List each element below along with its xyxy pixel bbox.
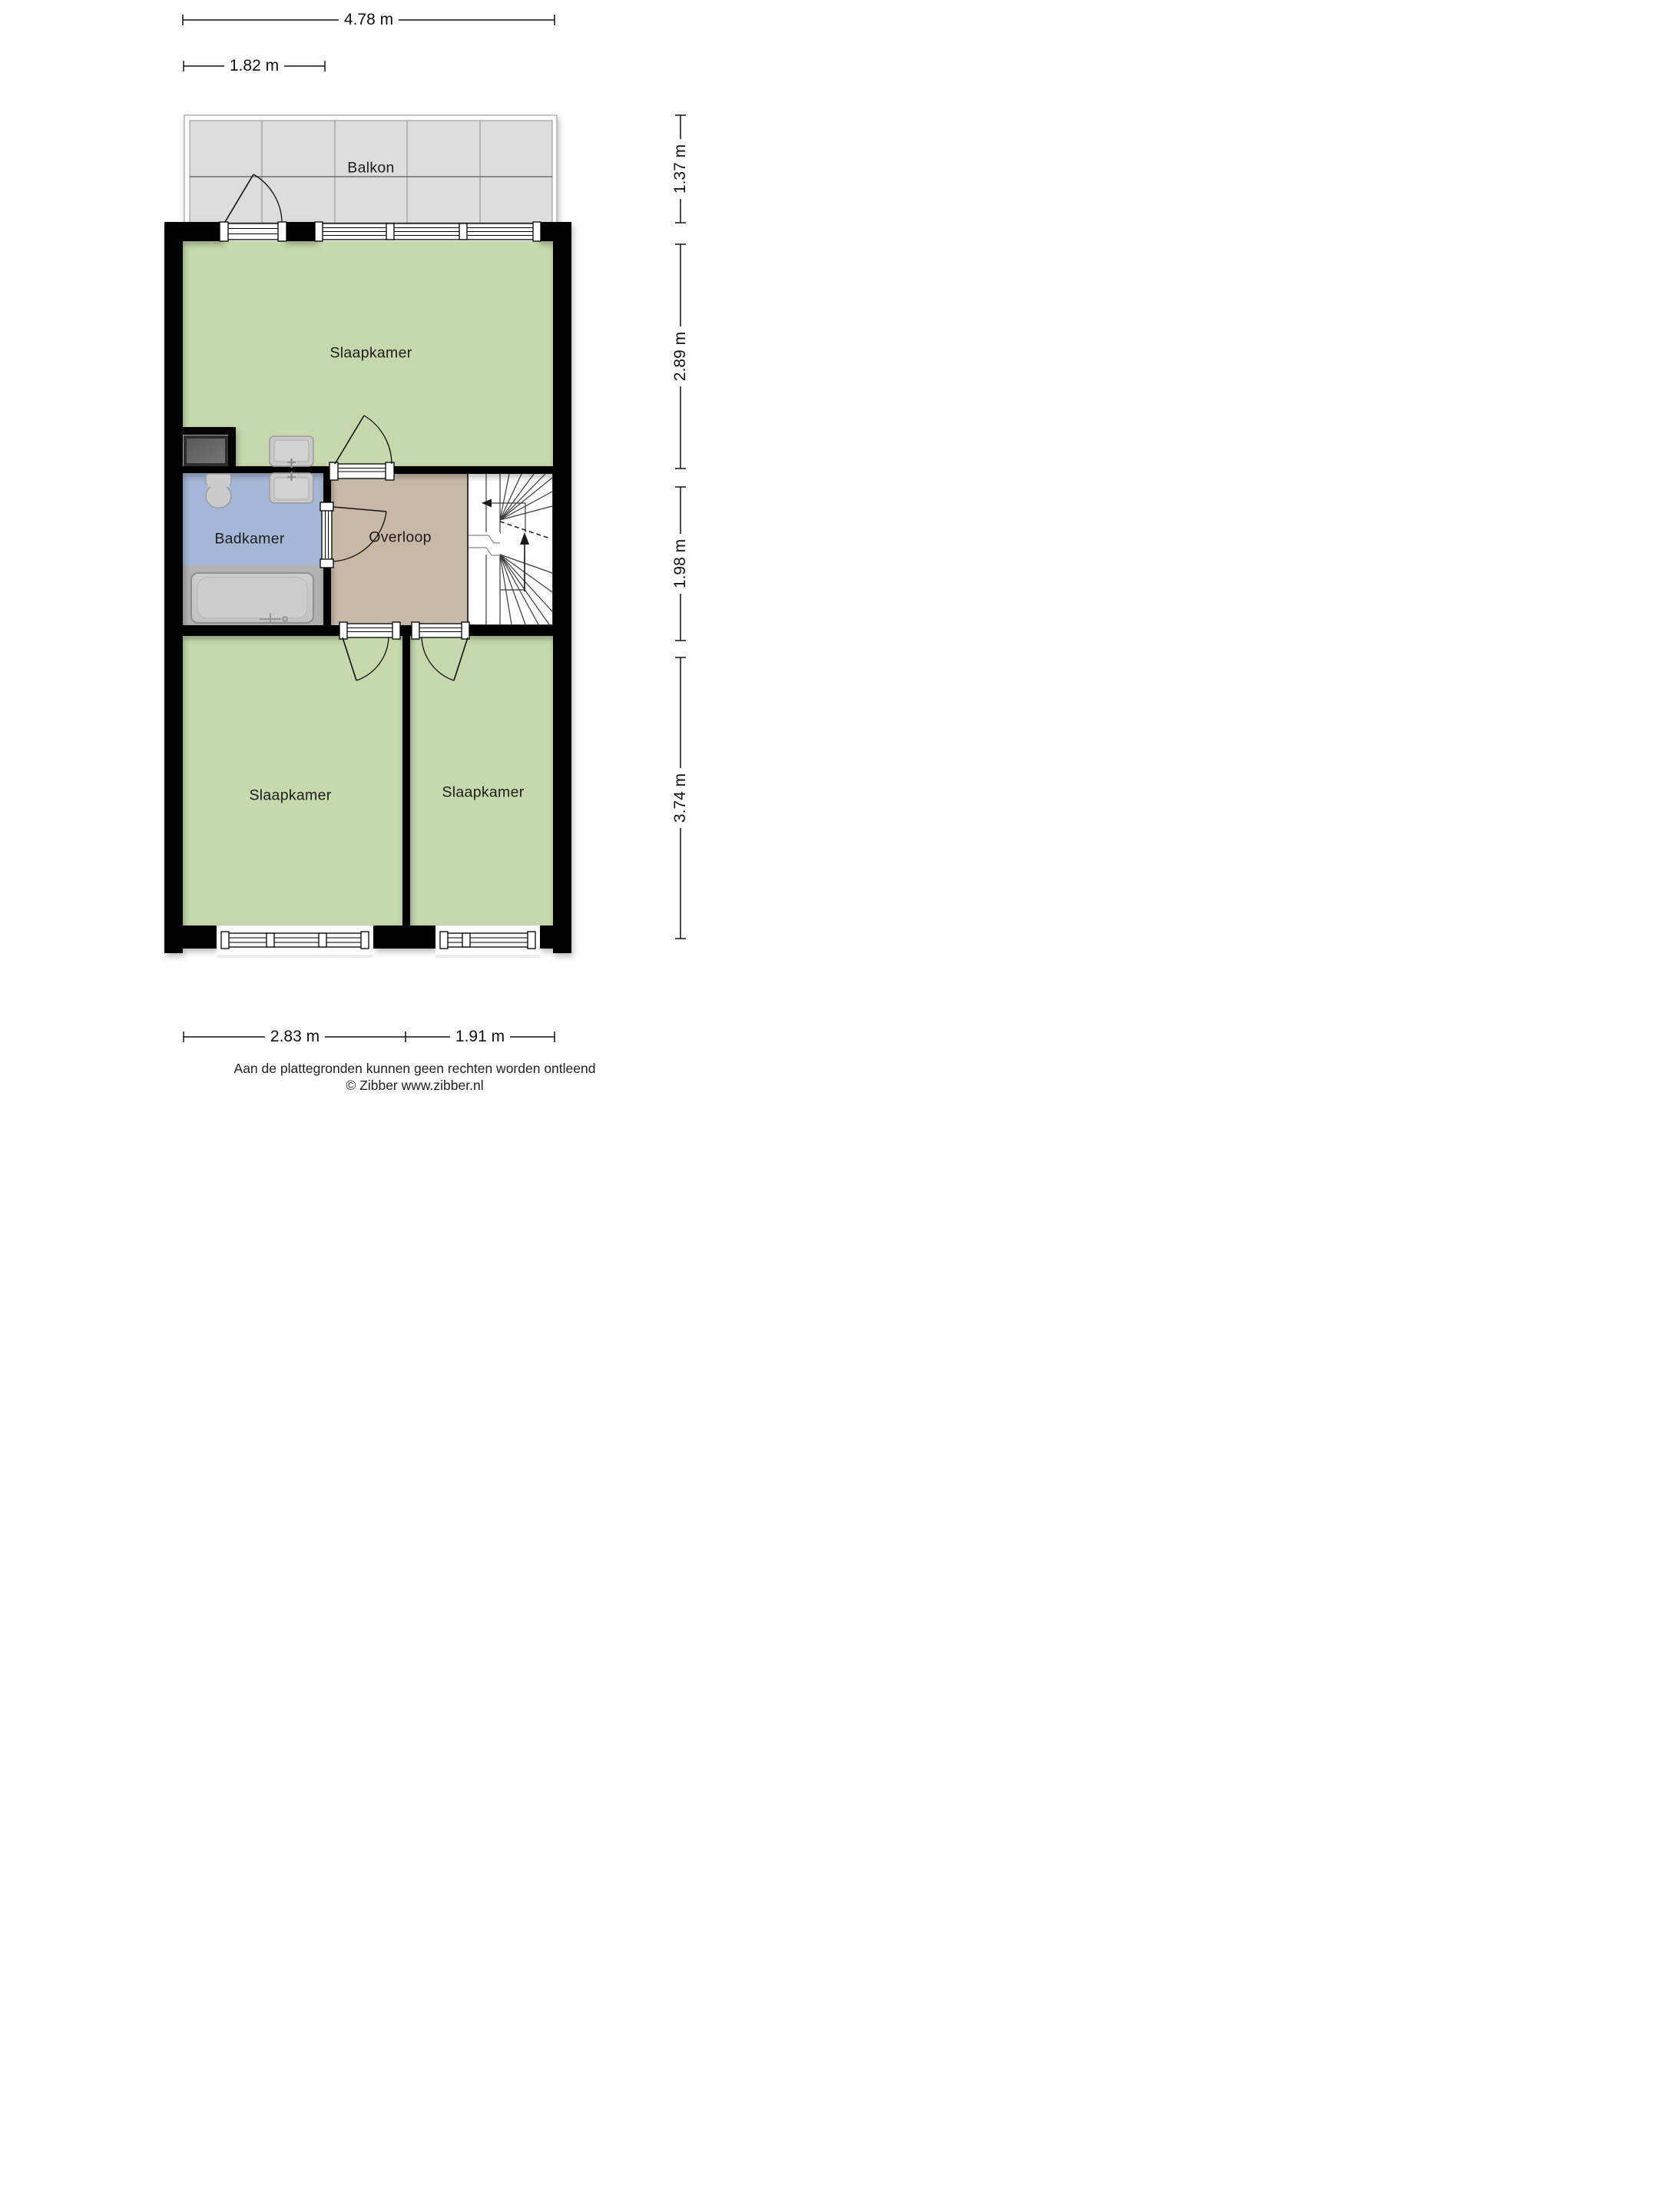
dimension-right-landing: 1.98 m [671, 534, 690, 594]
dimension-right-bedroom-top: 2.89 m [671, 326, 690, 386]
sink-icon [270, 436, 313, 468]
dimension-top-balcony-width: 1.82 m [224, 57, 284, 75]
sink-icon [270, 472, 313, 503]
dimension-bottom-right: 1.91 m [450, 1028, 510, 1046]
window-icon [315, 222, 541, 241]
dimension-top-width: 4.78 m [339, 11, 399, 29]
toilet-icon [206, 474, 231, 508]
bedroom-left-floor [183, 636, 402, 926]
dimension-bottom-left: 2.83 m [265, 1028, 325, 1046]
stairs-icon [468, 473, 553, 625]
footer-disclaimer: Aan de plattegronden kunnen geen rechten… [0, 1061, 829, 1077]
landing-floor [331, 473, 468, 625]
floorplan-page: Balkon Slaapkamer Badkamer Overloop Slaa… [0, 0, 829, 1106]
room-label-slaapkamer-right: Slaapkamer [442, 784, 524, 802]
bedroom-right-floor [410, 636, 553, 926]
dimension-right-balcony-depth: 1.37 m [671, 139, 690, 199]
cupboard-icon [184, 435, 228, 466]
bathtub-icon [191, 573, 313, 624]
floorplan-drawing [0, 0, 829, 1106]
room-label-slaapkamer-top: Slaapkamer [329, 345, 412, 363]
footer-credit: © Zibber www.zibber.nl [0, 1078, 829, 1094]
room-label-badkamer: Badkamer [214, 531, 284, 548]
room-label-balkon: Balkon [347, 160, 394, 177]
room-label-overloop: Overloop [369, 529, 432, 547]
window-icon [217, 926, 373, 958]
dimension-right-bedrooms-bottom: 3.74 m [671, 768, 690, 828]
window-icon [435, 926, 540, 958]
room-label-slaapkamer-left: Slaapkamer [249, 787, 331, 805]
